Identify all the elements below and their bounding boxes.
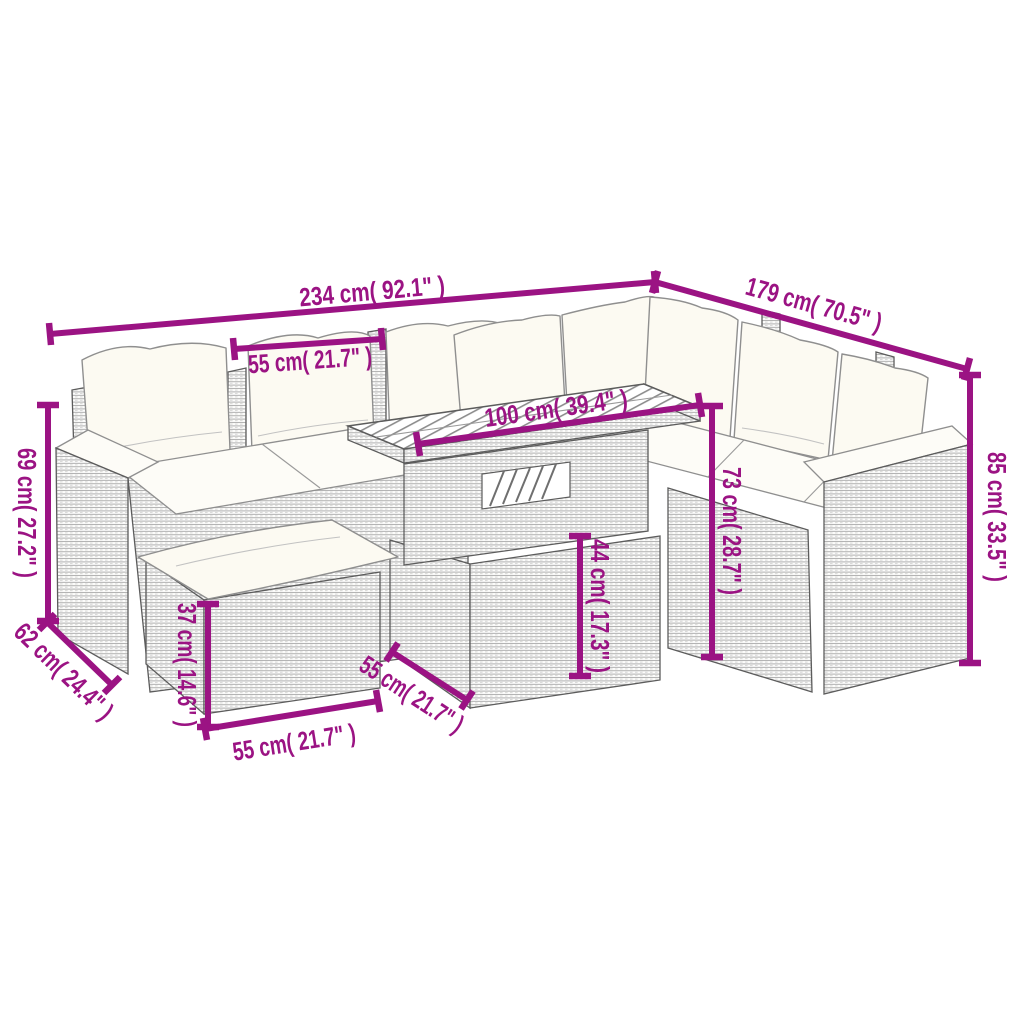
dimension-arm-height-label: 69 cm( 27.2" )	[12, 448, 42, 578]
diagram-canvas: 234 cm( 92.1" ) 179 cm( 70.5" ) 55 cm( 2…	[0, 0, 1024, 1024]
dimension-ottoman-height-label: 37 cm( 14.6" )	[172, 603, 202, 727]
dimension-diagram: 234 cm( 92.1" ) 179 cm( 70.5" ) 55 cm( 2…	[0, 0, 1024, 1024]
dimension-total-height-label: 85 cm( 33.5" )	[982, 452, 1012, 582]
left-back-post-2	[228, 368, 246, 458]
dimension-table-height-label: 44 cm( 17.3" )	[585, 539, 615, 673]
table-base-front-face	[470, 536, 660, 708]
dimension-back-height-label: 73 cm( 28.7" )	[717, 467, 747, 595]
right-armrest	[824, 444, 972, 694]
